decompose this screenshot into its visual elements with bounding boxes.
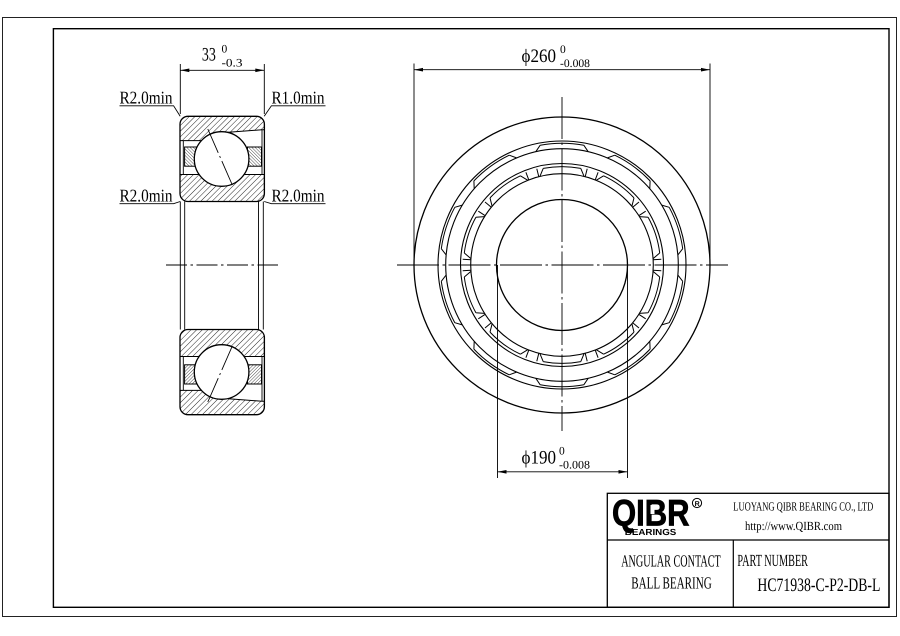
svg-text:0: 0 (560, 44, 566, 56)
svg-text:-0.3: -0.3 (222, 58, 243, 70)
svg-text:BEARINGS: BEARINGS (625, 527, 677, 537)
svg-text:R: R (695, 501, 700, 508)
svg-text:R2.0min: R2.0min (120, 185, 173, 205)
svg-text:LUOYANG QIBR BEARING CO., LTD: LUOYANG QIBR BEARING CO., LTD (733, 500, 873, 514)
svg-text:R1.0min: R1.0min (272, 88, 325, 108)
svg-text:PART NUMBER: PART NUMBER (737, 551, 808, 570)
svg-text:-0.008: -0.008 (560, 58, 590, 70)
svg-text:33: 33 (202, 45, 216, 66)
svg-text:HC71938-C-P2-DB-L: HC71938-C-P2-DB-L (757, 575, 880, 596)
svg-text:ϕ190: ϕ190 (522, 448, 557, 469)
svg-text:R2.0min: R2.0min (120, 88, 173, 108)
svg-text:R2.0min: R2.0min (272, 185, 325, 205)
svg-text:http://www.QIBR.com: http://www.QIBR.com (745, 519, 842, 533)
svg-text:0: 0 (222, 44, 228, 56)
svg-text:ANGULAR CONTACT: ANGULAR CONTACT (621, 551, 721, 570)
svg-text:ϕ260: ϕ260 (522, 46, 557, 67)
svg-text:BALL BEARING: BALL BEARING (631, 573, 712, 592)
svg-text:-0.008: -0.008 (559, 460, 590, 472)
svg-text:0: 0 (559, 446, 565, 458)
